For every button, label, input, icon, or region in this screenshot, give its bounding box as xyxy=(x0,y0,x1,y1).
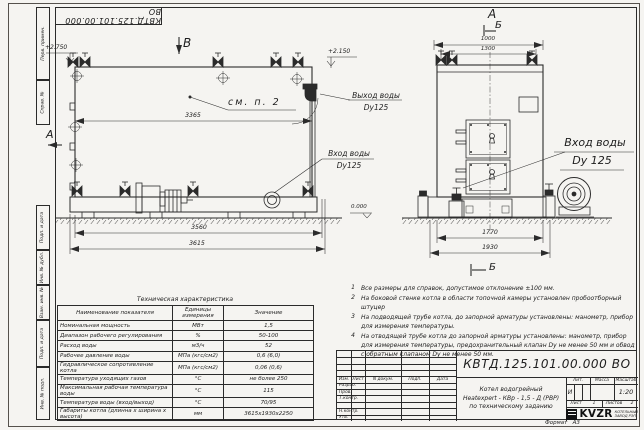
upper-door xyxy=(456,120,510,158)
front-view-leaders xyxy=(463,25,634,276)
spec-units: мм xyxy=(173,408,224,421)
spec-row: Гидравлическое сопротивление котлаМПа (к… xyxy=(58,361,314,374)
sheet-label: Лист xyxy=(566,400,586,407)
note-text: На подводящей трубе котла, до запорной а… xyxy=(361,313,635,331)
spec-units: МВт xyxy=(173,321,224,331)
product-name: Котел водогрейный Heatexpert - КВр - 1,5… xyxy=(456,377,566,421)
section-letter-a-side: А xyxy=(46,128,54,141)
dim-3615: 3615 xyxy=(168,240,226,247)
spec-row: Рабочее давление водыМПа (кгс/см2)0,6 (6… xyxy=(58,351,314,361)
kvzr-logo-text: KVZR xyxy=(579,408,612,420)
spec-name: Расход воды xyxy=(58,341,173,351)
lit-header: Лит. xyxy=(566,377,590,384)
spec-header-units: Единицы измерения xyxy=(173,306,224,321)
spec-table: Техническая характеристика Наименование … xyxy=(57,296,313,421)
format-label: Формат А3 xyxy=(545,420,580,426)
dim-1930: 1930 xyxy=(465,244,515,251)
product-name-line1: Котел водогрейный xyxy=(480,386,543,395)
dim-3560: 3560 xyxy=(170,224,228,231)
spec-units: % xyxy=(173,331,224,341)
elevation-top-label: +2.750 xyxy=(45,44,67,51)
format-value: А3 xyxy=(573,420,580,426)
note-text: Все размеры для справок, допустимое откл… xyxy=(361,284,555,293)
front-top-valves xyxy=(436,51,537,65)
sheets-value: 2 xyxy=(626,400,638,407)
spec-value: 1,5 xyxy=(224,321,314,331)
spec-table-title: Техническая характеристика xyxy=(57,296,313,303)
spec-value: 50-100 xyxy=(224,331,314,341)
lifting-lug-marks xyxy=(68,69,304,172)
spec-name: Габариты котла (длинна х ширина х высота… xyxy=(58,408,173,421)
spec-header-name: Наименование показателя xyxy=(58,306,173,321)
format-word: Формат xyxy=(545,420,567,426)
dim-1000: 1000 xyxy=(465,36,511,42)
spec-units: МПа (кгс/см2) xyxy=(173,351,224,361)
note-number: 2 xyxy=(345,294,361,312)
notes-block: 1 Все размеры для справок, допустимое от… xyxy=(345,284,635,360)
note-item: 1 Все размеры для справок, допустимое от… xyxy=(345,284,635,293)
spec-name: Номинальная мощность xyxy=(58,321,173,331)
inlet-water-label-front: Вход воды xyxy=(556,136,634,149)
scale-header: Масштаб xyxy=(614,377,638,384)
spec-units: °С xyxy=(173,384,224,397)
outlet-water-dn: Dy125 xyxy=(355,103,397,112)
view-letter-b-front: Б xyxy=(495,20,502,31)
lit-value: И xyxy=(566,384,574,400)
scale-value: 1:20 xyxy=(614,384,638,400)
blower-fan xyxy=(556,178,594,218)
spec-header-value: Значение xyxy=(224,306,314,321)
dim-3365: 3365 xyxy=(168,112,218,119)
spec-units: °С xyxy=(173,374,224,384)
top-valves xyxy=(68,53,303,67)
view-letter-a-front: А xyxy=(488,7,496,21)
elevation-ground-label: 0.000 xyxy=(351,204,367,210)
inlet-water-dn-front: Dy 125 xyxy=(560,154,624,167)
spec-row: Габариты котла (длинна х ширина х высота… xyxy=(58,408,314,421)
anchor-brackets xyxy=(418,184,555,217)
outlet-pipe xyxy=(292,84,318,197)
col-ndocum: N докум. xyxy=(365,376,401,382)
drawing-sheet: КВТД.125.101.00.000 ВО Перв. примен. Спр… xyxy=(0,0,644,430)
spec-value: 70/95 xyxy=(224,397,314,407)
elevation-outlet-label: +2.150 xyxy=(328,48,350,55)
spec-value: не более 250 xyxy=(224,374,314,384)
sheet-value: 1 xyxy=(586,400,602,407)
outlet-water-label: Выход воды xyxy=(350,91,402,100)
spec-row: Температура воды (вход/выход)°С70/95 xyxy=(58,397,314,407)
spec-value: 52 xyxy=(224,341,314,351)
dim-1300: 1300 xyxy=(465,46,511,52)
spec-row: Диапазон рабочего регулирования%50-100 xyxy=(58,331,314,341)
note-item: 2 На боковой стенке котла в области топо… xyxy=(345,294,635,312)
inlet-water-dn-side: Dy125 xyxy=(327,161,371,170)
spec-units: МПа (кгс/см2) xyxy=(173,361,224,374)
spec-row: Расход водым3/ч52 xyxy=(58,341,314,351)
section-letter-b-bottom: Б xyxy=(489,262,496,273)
spec-units: °С xyxy=(173,397,224,407)
product-name-line2: Heatexpert - КВр - 1,5 - Д (РВР) xyxy=(463,395,559,404)
spec-units: м3/ч xyxy=(173,341,224,351)
spec-name: Диапазон рабочего регулирования xyxy=(58,331,173,341)
side-view-geometry xyxy=(46,37,402,254)
col-data: Дата xyxy=(429,376,456,382)
spec-row: Температура уходящих газов°Сне более 250 xyxy=(58,374,314,384)
row-utv: Утв. xyxy=(337,415,365,421)
note-number: 3 xyxy=(345,313,361,331)
product-name-line3: по техническому заданию xyxy=(469,403,552,412)
spec-name: Рабочее давление воды xyxy=(58,351,173,361)
pump-motor-unit xyxy=(136,183,193,213)
lower-door xyxy=(456,160,510,194)
spec-name: Максимальная рабочая температура воды xyxy=(58,384,173,397)
spec-row: Номинальная мощностьМВт1,5 xyxy=(58,321,314,331)
spec-header-row: Наименование показателя Единицы измерени… xyxy=(58,306,314,321)
spec-value: 0,06 (0,6) xyxy=(224,361,314,374)
spec-value: 115 xyxy=(224,384,314,397)
spec-value: 3615х1930х2250 xyxy=(224,408,314,421)
titleblock-designation: КВТД.125.101.00.000 ВО xyxy=(456,351,638,377)
sheets-label: Листов xyxy=(602,400,626,407)
spec-name: Температура уходящих газов xyxy=(58,374,173,384)
note-text: На боковой стенке котла в области топочн… xyxy=(361,294,635,312)
company-logo: KVZR КОТЕЛЬНЫЙ ЗАВОД РЭП xyxy=(566,407,638,421)
dim-1770: 1770 xyxy=(465,229,515,236)
inlet-water-label-side: Вход воды xyxy=(324,149,374,158)
title-block: КВТД.125.101.00.000 ВО Изм. Лист N докум… xyxy=(336,350,637,420)
note-number: 1 xyxy=(345,284,361,293)
company-name: КОТЕЛЬНЫЙ ЗАВОД РЭП xyxy=(615,410,638,419)
company-name-line2: ЗАВОД РЭП xyxy=(615,414,638,418)
row-tkontr: Т.контр. xyxy=(337,395,365,401)
front-view-geometry xyxy=(402,25,634,276)
inlet-flange xyxy=(264,192,280,208)
mass-header: Масса xyxy=(590,377,614,384)
sight-glass xyxy=(519,97,538,112)
spec-row: Максимальная рабочая температура воды°С1… xyxy=(58,384,314,397)
note-item: 3 На подводящей трубе котла, до запорной… xyxy=(345,313,635,331)
spec-value: 0,6 (6,0) xyxy=(224,351,314,361)
view-letter-v: В xyxy=(183,36,191,50)
see-note-label: см. п. 2 xyxy=(228,97,281,108)
spec-name: Температура воды (вход/выход) xyxy=(58,397,173,407)
col-podp: Подп. xyxy=(401,376,429,382)
kvzr-logo-icon xyxy=(566,409,577,420)
spec-name: Гидравлическое сопротивление котла xyxy=(58,361,173,374)
